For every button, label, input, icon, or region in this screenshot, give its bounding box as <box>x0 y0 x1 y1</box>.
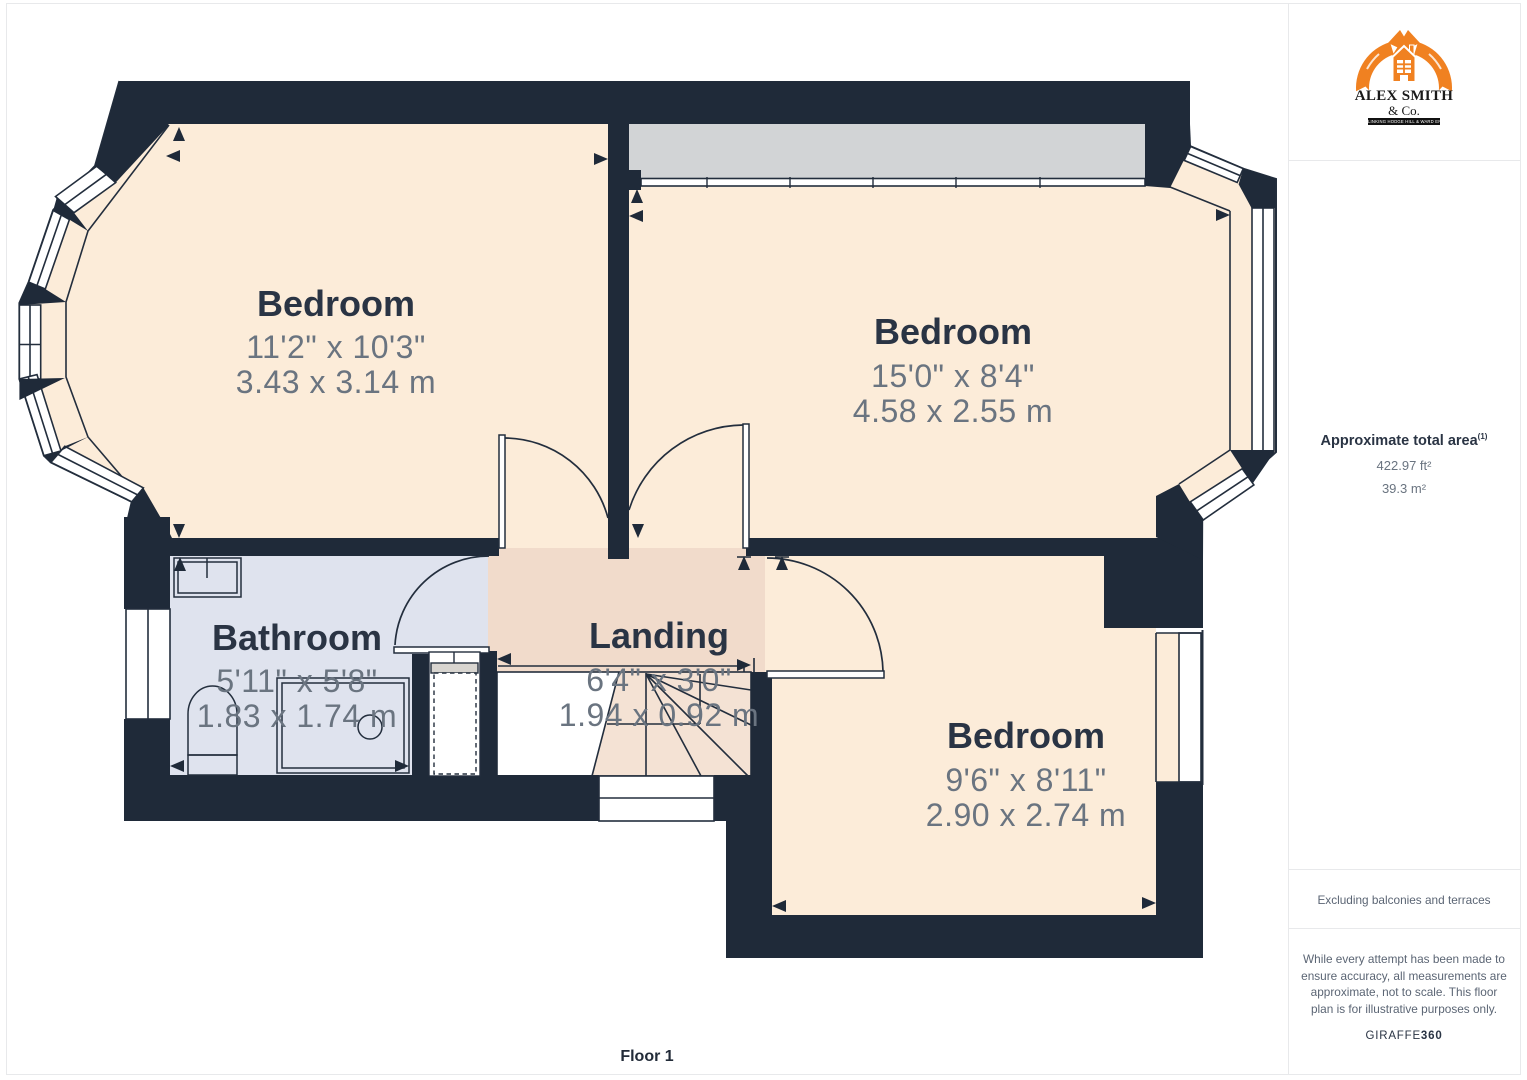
svg-text:Landing: Landing <box>589 615 729 656</box>
svg-text:Floor 1: Floor 1 <box>620 1048 673 1065</box>
svg-text:Bedroom: Bedroom <box>947 715 1105 756</box>
svg-text:2.90 x 2.74 m: 2.90 x 2.74 m <box>926 797 1126 833</box>
svg-text:5'11" x 5'8": 5'11" x 5'8" <box>216 663 377 699</box>
svg-text:1.83 x 1.74 m: 1.83 x 1.74 m <box>197 698 397 734</box>
svg-text:Bedroom: Bedroom <box>874 311 1032 352</box>
svg-text:1.94 x 0.92 m: 1.94 x 0.92 m <box>559 697 759 733</box>
svg-text:Bathroom: Bathroom <box>212 617 382 658</box>
svg-text:15'0" x 8'4": 15'0" x 8'4" <box>871 358 1035 394</box>
svg-text:3.43 x 3.14 m: 3.43 x 3.14 m <box>236 364 436 400</box>
svg-text:6'4" x 3'0": 6'4" x 3'0" <box>586 662 731 698</box>
svg-text:11'2" x 10'3": 11'2" x 10'3" <box>246 329 426 365</box>
svg-text:9'6" x 8'11": 9'6" x 8'11" <box>945 762 1106 798</box>
svg-text:4.58 x 2.55 m: 4.58 x 2.55 m <box>853 393 1053 429</box>
svg-text:Bedroom: Bedroom <box>257 283 415 324</box>
